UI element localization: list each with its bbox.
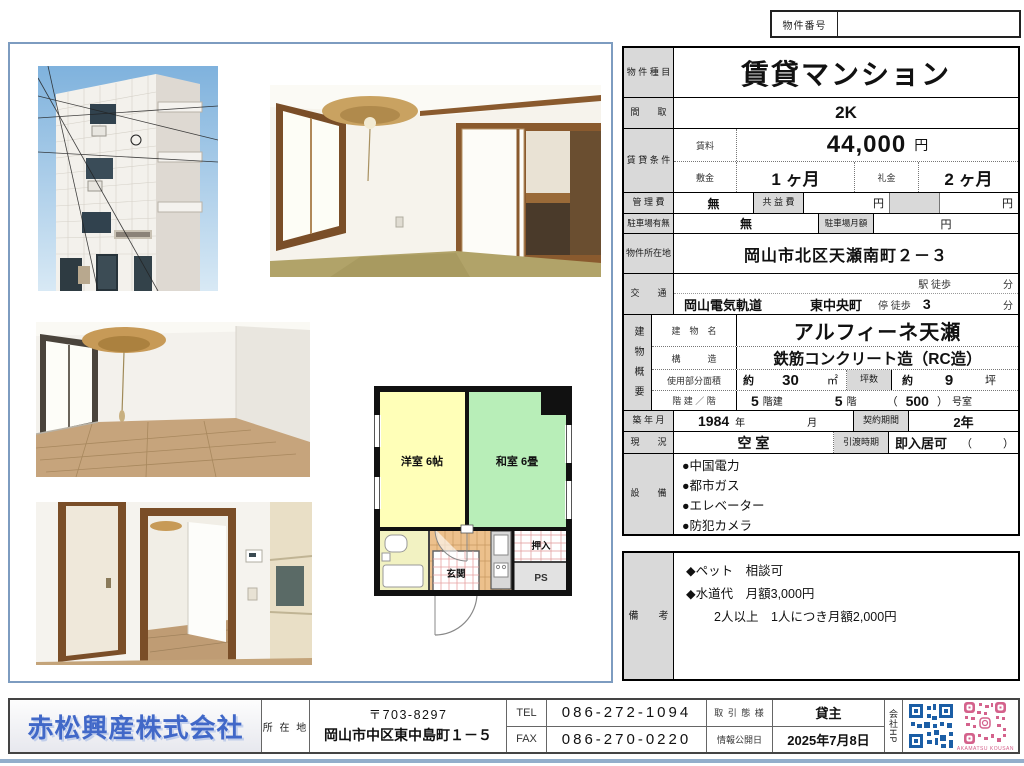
company-telfax-block: TEL 086-272-1094 FAX 086-270-0220 bbox=[507, 700, 707, 752]
built-date-label: 築 年 月 bbox=[624, 411, 674, 431]
floor-plan-room-japanese-label: 和室 6畳 bbox=[496, 454, 538, 468]
structure-value: 鉄筋コンクリート造（RC造） bbox=[737, 347, 1018, 369]
management-fee-value: 無 bbox=[674, 193, 754, 213]
building-floors-unit: 階建 bbox=[763, 393, 783, 408]
tel-label: TEL bbox=[507, 700, 547, 726]
room-number: 500 bbox=[906, 393, 929, 409]
building-name-label: 建 物 名 bbox=[652, 315, 737, 346]
property-number-box: 物件番号 bbox=[770, 10, 1021, 38]
building-summary-label: 建物概要 bbox=[624, 315, 652, 410]
common-fee-label: 共 益 費 bbox=[754, 193, 804, 213]
parking-value: 無 bbox=[674, 214, 819, 233]
western-room-illustration bbox=[36, 322, 310, 477]
built-month-unit: 月 bbox=[807, 414, 817, 429]
building-exterior-illustration bbox=[38, 66, 218, 291]
deal-type-label: 取 引 態 様 bbox=[707, 700, 773, 726]
property-number-label: 物件番号 bbox=[772, 12, 838, 36]
structure-label: 構 造 bbox=[652, 347, 737, 369]
tsubo-unit: 坪 bbox=[985, 372, 996, 388]
status-label: 現 況 bbox=[624, 432, 674, 453]
floor-value: 5 bbox=[835, 393, 843, 409]
rent-unit: 円 bbox=[914, 135, 928, 155]
fee-blank-cell bbox=[889, 193, 940, 213]
handover-value: 即入居可 bbox=[895, 433, 947, 452]
company-postal-code: 〒703-8297 bbox=[369, 706, 448, 725]
fax-number: 086-270-0220 bbox=[547, 727, 706, 753]
photo-interior-tatami-room bbox=[270, 85, 601, 277]
tsubo-label: 坪数 bbox=[847, 370, 892, 390]
floors-label: 階 建 ／ 階 bbox=[652, 391, 737, 410]
layout-label: 間 取 bbox=[624, 98, 674, 128]
floor-area-unit: ㎡ bbox=[827, 372, 838, 388]
location-value: 岡山市北区天瀬南町２－３ bbox=[674, 234, 1018, 273]
floor-area-label: 使用部分面積 bbox=[652, 370, 737, 390]
parking-monthly-label: 駐車場月額 bbox=[819, 214, 874, 233]
deal-info-block: 取 引 態 様 貸主 情報公開日 2025年7月8日 bbox=[707, 700, 885, 752]
floor-area-value: 30 bbox=[782, 372, 799, 389]
stop-name: 東中央町 bbox=[810, 295, 862, 314]
interior-room-illustration bbox=[270, 85, 601, 277]
parking-label: 駐車場有無 bbox=[624, 214, 674, 233]
qr-caption: AKAMATSU KOUSAN bbox=[957, 746, 1014, 752]
station-walk-label: 駅 徒歩 bbox=[918, 276, 951, 291]
management-fee-label: 管 理 費 bbox=[624, 193, 674, 213]
company-address-label: 所 在 地 bbox=[262, 700, 310, 752]
floor-plan-room-west-label: 洋室 6帖 bbox=[401, 454, 443, 468]
equipment-item: ●中国電力 bbox=[682, 456, 1018, 476]
station-walk-min-unit: 分 bbox=[1003, 276, 1013, 291]
floor-plan-ps-label: PS bbox=[534, 573, 548, 584]
built-year-unit: 年 bbox=[735, 414, 745, 429]
rent-conditions-label: 賃 貸 条 件 bbox=[624, 129, 674, 192]
tsubo-value: 9 bbox=[945, 372, 953, 389]
equipment-item: ●エレベーター bbox=[682, 496, 1018, 516]
contract-term-label: 契約期間 bbox=[854, 411, 909, 431]
deposit-label: 敷金 bbox=[674, 162, 737, 192]
key-money-value: 2 ヶ月 bbox=[919, 162, 1018, 192]
location-label: 物件所在地 bbox=[624, 234, 674, 273]
rail-company: 岡山電気軌道 bbox=[684, 295, 762, 314]
remarks-item: 2人以上 1人につき月額2,000円 bbox=[686, 606, 1012, 629]
photo-western-room bbox=[36, 322, 310, 477]
equipment-item: ●防犯カメラ bbox=[682, 516, 1018, 536]
qr-code-blue-icon bbox=[907, 702, 955, 750]
floor-area-approx: 約 bbox=[743, 372, 754, 388]
deposit-value: 1 ヶ月 bbox=[737, 162, 855, 192]
fax-label: FAX bbox=[507, 727, 547, 753]
building-name-value: アルフィーネ天瀬 bbox=[737, 315, 1018, 346]
qr-code-pink-icon bbox=[963, 701, 1007, 745]
company-hp-label: 会社HP bbox=[885, 700, 903, 752]
parking-monthly-unit: 円 bbox=[874, 214, 1018, 233]
handover-paren-close: ） bbox=[1003, 435, 1014, 451]
layout-value: 2K bbox=[674, 98, 1018, 128]
remarks-box: 備 考 ◆ペット 相談可 ◆水道代 月額3,000円 2人以上 1人につき月額2… bbox=[622, 551, 1020, 681]
deal-type-value: 貸主 bbox=[773, 700, 884, 726]
tel-number: 086-272-1094 bbox=[547, 700, 706, 726]
remarks-item: ◆ペット 相談可 bbox=[686, 560, 1012, 583]
floor-plan-entrance-label: 玄関 bbox=[446, 568, 465, 580]
floor-plan-drawing: 洋室 6帖 和室 6畳 玄関 押入 PS bbox=[373, 385, 573, 637]
other-fee-unit: 円 bbox=[940, 193, 1018, 213]
key-money-label: 礼金 bbox=[855, 162, 919, 192]
company-hp-qr bbox=[907, 702, 955, 750]
tsubo-approx: 約 bbox=[902, 372, 913, 388]
company-sns-qr: AKAMATSU KOUSAN bbox=[957, 701, 1014, 752]
built-year: 1984 bbox=[698, 413, 729, 429]
property-spec-table: 物 件 種 目 賃貸マンション 間 取 2K 賃 貸 条 件 賃料 44,000… bbox=[622, 46, 1020, 536]
photo-building-exterior bbox=[38, 66, 218, 291]
building-floors-value: 5 bbox=[751, 393, 759, 409]
hallway-illustration bbox=[36, 502, 312, 665]
rent-label: 賃料 bbox=[674, 129, 737, 161]
page-bottom-rule bbox=[0, 759, 1024, 763]
contract-term-value: 2年 bbox=[909, 411, 1018, 431]
remarks-item: ◆水道代 月額3,000円 bbox=[686, 583, 1012, 606]
floor-plan-closet-label: 押入 bbox=[531, 540, 551, 552]
photo-panel: 洋室 6帖 和室 6畳 玄関 押入 PS bbox=[8, 42, 613, 683]
rent-value: 44,000 bbox=[827, 131, 906, 159]
stop-walk-min-unit: 分 bbox=[1003, 297, 1013, 312]
floor-plan: 洋室 6帖 和室 6畳 玄関 押入 PS bbox=[373, 385, 573, 637]
stop-walk-label: 停 徒歩 bbox=[878, 297, 911, 312]
company-address-value: 岡山市中区東中島町１－５ bbox=[324, 725, 492, 746]
company-name: 赤松興産株式会社 bbox=[10, 700, 262, 752]
common-fee-unit: 円 bbox=[804, 193, 889, 213]
floor-unit: 階 bbox=[847, 393, 857, 408]
stop-walk-min: 3 bbox=[923, 296, 931, 312]
company-footer: 赤松興産株式会社 所 在 地 〒703-8297 岡山市中区東中島町１－５ TE… bbox=[8, 698, 1020, 754]
property-type-value: 賃貸マンション bbox=[674, 48, 1018, 97]
qr-code-area: AKAMATSU KOUSAN bbox=[903, 700, 1018, 752]
handover-label: 引渡時期 bbox=[834, 432, 889, 453]
remarks-label: 備 考 bbox=[624, 553, 674, 679]
property-type-label: 物 件 種 目 bbox=[624, 48, 674, 97]
photo-hallway bbox=[36, 502, 312, 665]
property-number-value bbox=[838, 12, 1019, 36]
room-unit: 号室 bbox=[952, 393, 972, 408]
publish-date-label: 情報公開日 bbox=[707, 727, 773, 753]
company-address-block: 〒703-8297 岡山市中区東中島町１－５ bbox=[310, 700, 507, 752]
room-paren-close: ） bbox=[937, 393, 948, 409]
transport-label: 交 通 bbox=[624, 274, 674, 314]
status-value: 空 室 bbox=[674, 432, 834, 453]
room-paren-open: （ bbox=[887, 393, 898, 409]
equipment-label: 設 備 bbox=[624, 454, 674, 534]
publish-date-value: 2025年7月8日 bbox=[773, 727, 884, 753]
flyer-page: 物件番号 bbox=[0, 0, 1024, 766]
equipment-item: ●都市ガス bbox=[682, 476, 1018, 496]
handover-paren-open: （ bbox=[961, 435, 972, 451]
